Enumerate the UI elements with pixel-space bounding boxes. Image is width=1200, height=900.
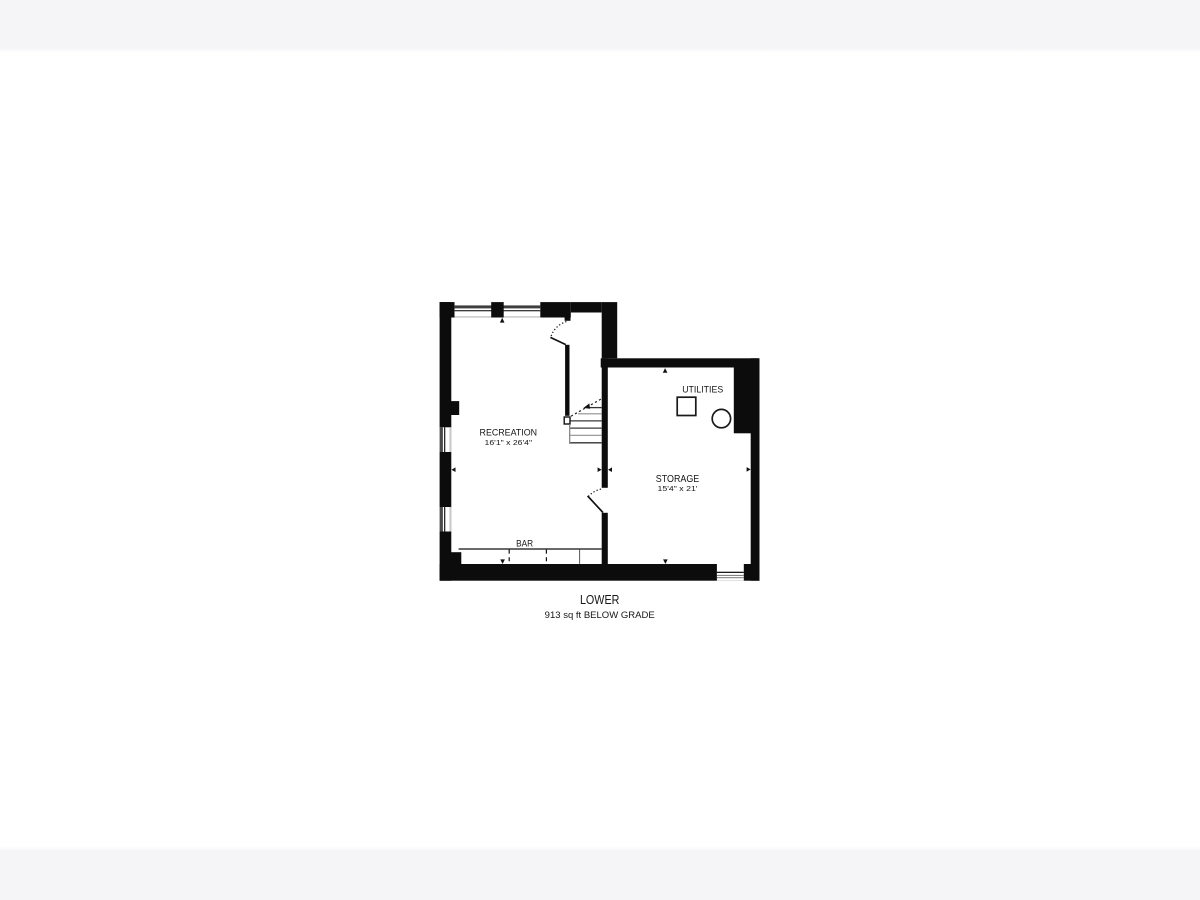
svg-text:LOWER: LOWER bbox=[580, 593, 620, 607]
svg-text:16'1" x 26'4": 16'1" x 26'4" bbox=[485, 440, 533, 447]
svg-text:15'4" x 21': 15'4" x 21' bbox=[658, 486, 698, 493]
svg-text:BAR: BAR bbox=[516, 538, 533, 549]
svg-text:STORAGE: STORAGE bbox=[656, 474, 700, 485]
svg-text:913 sq ft BELOW GRADE: 913 sq ft BELOW GRADE bbox=[545, 610, 655, 620]
svg-text:RECREATION: RECREATION bbox=[480, 427, 538, 437]
svg-text:UTILITIES: UTILITIES bbox=[682, 384, 723, 394]
